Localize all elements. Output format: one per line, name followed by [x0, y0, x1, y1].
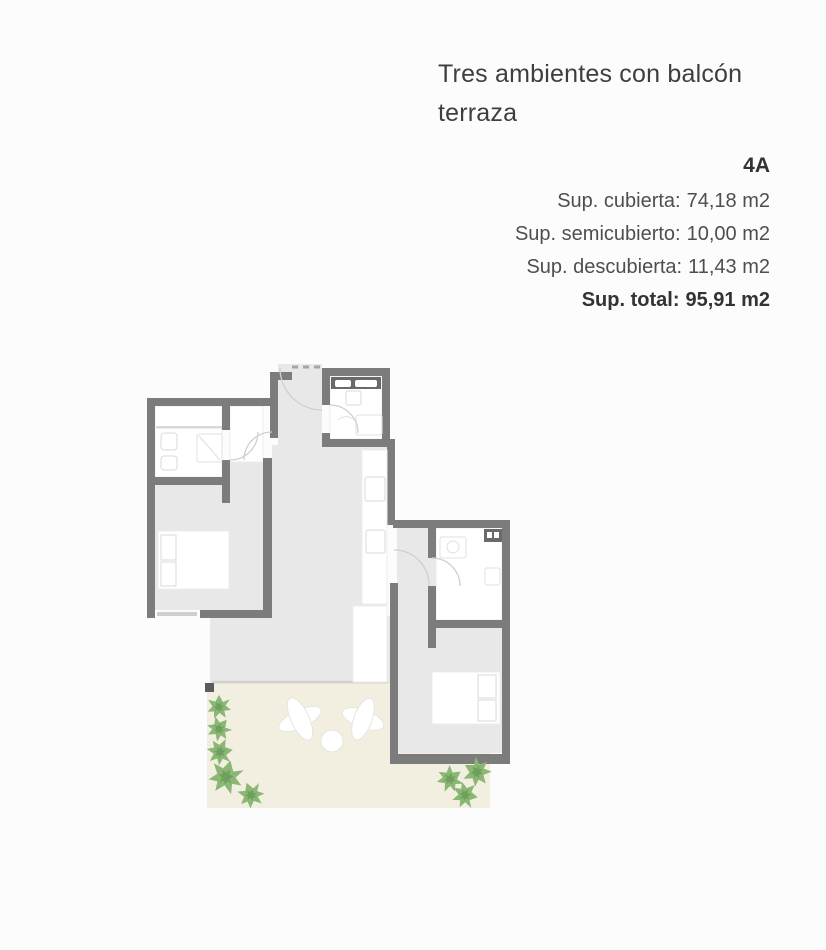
terrace-column: [205, 683, 214, 692]
kitchen-counter: [362, 450, 387, 604]
bidet: [161, 456, 177, 470]
vent-unit: [484, 529, 502, 542]
toilet: [161, 433, 177, 450]
left-suite-passage-floor: [230, 462, 263, 488]
terrace-table: [321, 730, 343, 752]
bedroom-window: [157, 612, 197, 616]
pillow: [478, 675, 496, 698]
washbasin: [355, 380, 377, 387]
pillow: [161, 535, 176, 560]
toilet: [346, 391, 361, 405]
sofa: [353, 606, 387, 682]
washbasin: [335, 380, 351, 387]
pillow: [478, 700, 496, 721]
floorplan: [0, 0, 826, 950]
page: { "page": { "background": "#fcfcfc" }, "…: [0, 0, 826, 950]
pillow: [161, 562, 176, 586]
kitchen-sink: [365, 477, 385, 501]
cooktop: [366, 530, 385, 553]
closet-line: [156, 426, 222, 429]
